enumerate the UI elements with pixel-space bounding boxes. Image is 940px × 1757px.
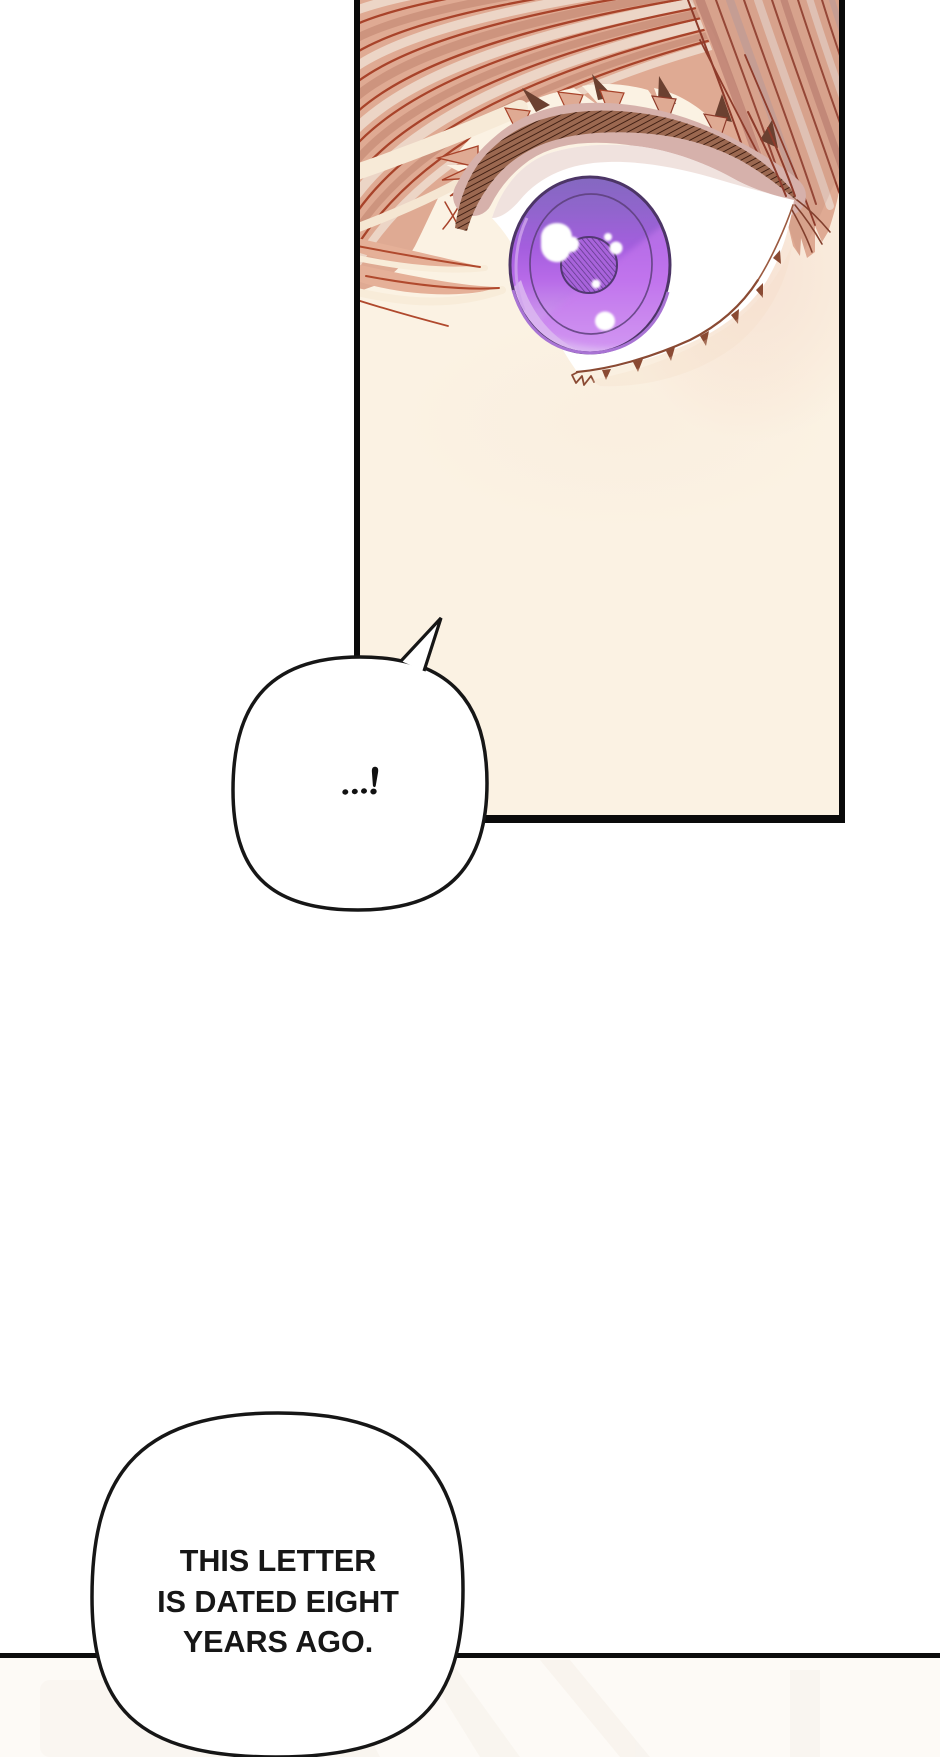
svg-text:YEARS AGO.: YEARS AGO.: [183, 1625, 373, 1659]
svg-text:IS DATED EIGHT: IS DATED EIGHT: [157, 1585, 399, 1619]
svg-text:THIS LETTER: THIS LETTER: [180, 1544, 377, 1578]
